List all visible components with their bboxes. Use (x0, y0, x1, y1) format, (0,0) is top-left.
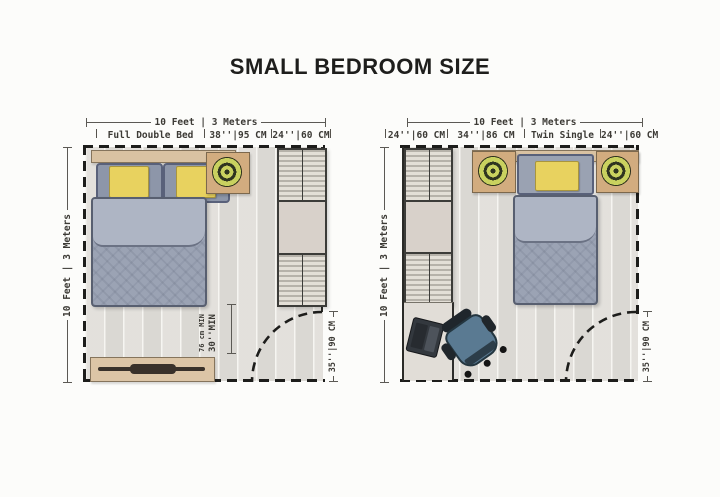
segment-label-24in-right: 24''|60 CM (601, 130, 653, 141)
plant-icon (478, 156, 508, 186)
plant-icon (212, 157, 242, 187)
page-title: SMALL BEDROOM SIZE (0, 54, 720, 80)
wardrobe-shelf (406, 254, 451, 304)
dimension-line (408, 122, 470, 123)
wardrobe-shelf (279, 255, 325, 305)
duvet-fold (93, 199, 205, 247)
dimension-line (384, 320, 385, 382)
dimension-tick (227, 353, 236, 354)
door-width-label: 35''|90 CM (642, 317, 652, 376)
dimension-tick (642, 118, 643, 127)
cushion (109, 166, 149, 198)
dimension-tick (380, 382, 389, 383)
wardrobe-shelf (406, 150, 451, 202)
dimension-line (87, 122, 151, 123)
dimension-line (384, 148, 385, 210)
left-room-wall-left (83, 145, 86, 382)
tv-center (130, 364, 176, 374)
dimension-tick (329, 381, 338, 382)
wardrobe-cabinet (279, 202, 325, 254)
dimension-label: 10 Feet | 3 Meters (151, 117, 262, 128)
duvet-fold (515, 197, 596, 243)
dimension-label: 10 Feet | 3 Meters (62, 210, 73, 321)
segment-label-38in: 38''|95 CM (205, 130, 271, 141)
dimension-line (67, 320, 68, 382)
plant-icon (601, 156, 631, 186)
door-dimension: 35''|90 CM (640, 311, 654, 382)
dimension-line (231, 305, 232, 329)
chair-wheel (463, 369, 473, 379)
dimension-label: 10 Feet | 3 Meters (470, 117, 581, 128)
duvet (91, 197, 207, 307)
segment-tick (330, 129, 331, 138)
right-plan-side-dimension: 10 Feet | 3 Meters (377, 147, 391, 383)
segment-label-24in-left: 24''|60 CM (386, 130, 447, 141)
wardrobe-cabinet (406, 202, 451, 254)
dimension-tick (63, 382, 72, 383)
dimension-line (67, 148, 68, 210)
left-plan-side-dimension: 10 Feet | 3 Meters (60, 147, 74, 383)
door-width-label: 35''|90 CM (328, 317, 338, 376)
clearance-dimension (224, 304, 238, 354)
dimension-line (580, 122, 642, 123)
cushion (535, 161, 579, 191)
door-dimension: 35''|90 CM (326, 311, 340, 382)
duvet (513, 195, 598, 305)
chair-wheel (498, 345, 508, 355)
door-swing-arc (566, 312, 636, 382)
right-plan-top-dimension: 10 Feet | 3 Meters (407, 116, 643, 128)
dimension-line (261, 122, 325, 123)
segment-label-24in: 24''|60 CM (272, 130, 330, 141)
wardrobe-shelf (279, 150, 325, 202)
segment-label-full-double-bed: Full Double Bed (97, 130, 204, 141)
dimension-tick (643, 381, 652, 382)
dimension-tick (325, 118, 326, 127)
door-swing-arc (252, 312, 322, 382)
dimension-label: 10 Feet | 3 Meters (379, 210, 390, 321)
wardrobe (404, 148, 453, 306)
segment-label-twin-single: Twin Single (525, 130, 600, 141)
segment-label-34in: 34''|86 CM (448, 130, 524, 141)
floor-plan-diagram: SMALL BEDROOM SIZE 10 Feet | 3 Meters Fu… (0, 0, 720, 497)
dimension-line (231, 329, 232, 353)
wardrobe (277, 148, 327, 307)
left-plan-top-dimension: 10 Feet | 3 Meters (86, 116, 326, 128)
